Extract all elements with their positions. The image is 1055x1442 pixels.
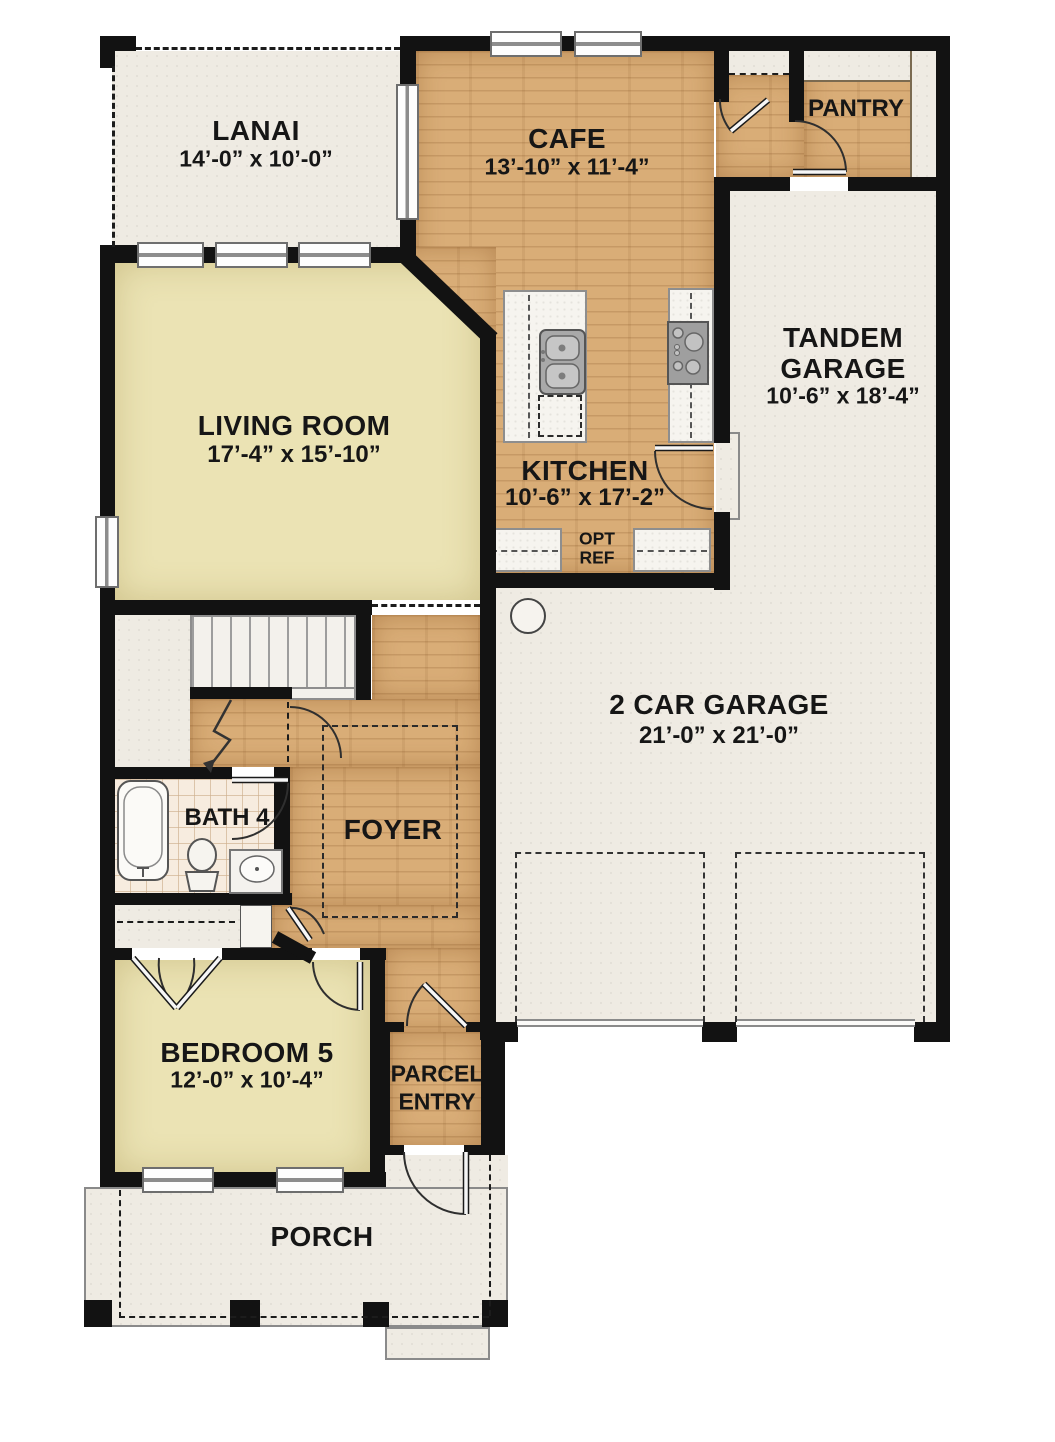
floor-plan: LANAI 14’-0” x 10’-0” CAFE 13’-10” x 11’… <box>0 0 1055 1442</box>
wall-kitchen-bottom <box>480 573 716 588</box>
counter-right-dash-line <box>690 293 692 438</box>
wall-bedroom-top-mid <box>222 948 312 960</box>
lanai-cafe-slider-window <box>396 84 419 220</box>
cafe-label: CAFE <box>528 125 606 153</box>
wall-tandem-left-upper <box>714 191 730 443</box>
wall-top-main <box>400 36 950 51</box>
kitchen-dims: 10’-6” x 17’-2” <box>505 486 665 510</box>
garage-door-post-left <box>496 1022 518 1042</box>
porch-label: PORCH <box>270 1223 373 1251</box>
wall-right-outer <box>936 36 950 1042</box>
kitchen-counter-bottom-left <box>487 528 562 572</box>
two-car-garage-label: 2 CAR GARAGE <box>609 691 829 719</box>
wall-pantry-bottom-right <box>848 177 936 191</box>
living-room-dims: 17’-4” x 15’-10” <box>207 443 380 467</box>
foyer-opening-dash <box>372 604 480 607</box>
lanai-window-2 <box>215 242 288 268</box>
foyer-floor-entry <box>385 948 481 1032</box>
wall-stairhall-top <box>100 600 372 615</box>
island-dash-line <box>528 295 530 438</box>
wall-bath-right <box>274 767 290 905</box>
garage-entry-step <box>716 432 740 520</box>
bedroom5-dims: 12’-0” x 10’-4” <box>170 1069 323 1092</box>
island-opt-box <box>538 395 582 437</box>
kitchen-label: KITCHEN <box>521 457 648 485</box>
porch-post-right <box>482 1300 508 1327</box>
stair-passage-dash <box>287 702 289 762</box>
porch-dash-right <box>489 1155 491 1316</box>
closet-rod-dash <box>117 921 235 923</box>
pantry-label: PANTRY <box>808 97 904 121</box>
wall-bath-bottom <box>100 893 292 905</box>
wall-parcel-top-right <box>466 1022 495 1032</box>
wall-bath-top <box>100 767 232 779</box>
lanai-dims: 14’-0” x 10’-0” <box>179 148 332 171</box>
closet-floor <box>114 905 240 948</box>
garage-bay-dashed-right <box>735 852 925 1022</box>
bedroom5-label: BEDROOM 5 <box>160 1039 333 1067</box>
bedroom-window-2 <box>276 1167 344 1193</box>
lanai-window-3 <box>298 242 371 268</box>
porch-post-mid <box>230 1300 260 1327</box>
wall-bedroom-top-left <box>100 948 132 960</box>
bedroom-window-1 <box>142 1167 214 1193</box>
counter-bl-dash-line <box>491 550 558 552</box>
two-car-garage-dims: 21’-0” x 21’-0” <box>639 724 799 748</box>
living-room-side-window <box>95 516 119 588</box>
wall-left-outer <box>100 263 115 1187</box>
tandem-garage-label-line1: TANDEM <box>783 324 903 352</box>
porch-dash-left <box>119 1190 121 1318</box>
stair-landing-floor <box>114 615 190 767</box>
counter-br-dash-line <box>637 550 707 552</box>
kitchen-counter-right <box>668 288 714 443</box>
living-room-label: LIVING ROOM <box>198 412 391 440</box>
staircase-treads <box>190 615 356 691</box>
porch-floor <box>84 1187 508 1327</box>
wall-parcel-bottom-right <box>464 1145 495 1155</box>
bath4-label: BATH 4 <box>185 806 270 830</box>
kitchen-counter-bottom-right <box>633 528 711 572</box>
tandem-garage-label-line2: GARAGE <box>780 355 905 383</box>
wall-stair-right <box>356 615 371 700</box>
wall-parcel-top-left <box>376 1022 404 1032</box>
opt-ref-label-line2: REF <box>580 549 615 567</box>
wall-parcel-left <box>376 1022 390 1155</box>
opt-ref-label-line1: OPT <box>579 530 615 548</box>
lanai-window-1 <box>137 242 204 268</box>
lanai-corner-post-v <box>100 36 115 68</box>
cafe-window-1 <box>490 31 562 57</box>
niche-dash <box>729 73 789 75</box>
lanai-label: LANAI <box>212 117 300 145</box>
lanai-dash-left <box>112 66 115 247</box>
garage-door-post-mid <box>702 1022 737 1042</box>
wall-closet-pillar <box>240 905 272 948</box>
parcel-entry-label-line1: PARCEL <box>391 1063 484 1086</box>
wall-pantry-bottom-left <box>714 177 790 191</box>
lanai-dash-top <box>136 47 400 50</box>
wall-parcel-bottom-left <box>376 1145 404 1155</box>
pantry-shelf-right <box>910 51 938 177</box>
kitchen-island <box>503 290 587 443</box>
tandem-garage-dims: 10’-6” x 18’-4” <box>766 385 919 408</box>
staircase-landing-tread <box>290 687 356 700</box>
cafe-window-2 <box>574 31 642 57</box>
garage-door-post-right <box>914 1022 950 1042</box>
cafe-dims: 13’-10” x 11’-4” <box>485 156 650 179</box>
wall-niche-left <box>714 36 729 102</box>
wall-stair-mid <box>190 687 292 699</box>
wall-pantry-left <box>789 36 804 122</box>
porch-post-left <box>84 1300 112 1327</box>
porch-post-third <box>363 1302 389 1327</box>
wall-living-kitchen <box>480 332 496 573</box>
garage-bay-dashed-left <box>515 852 705 1022</box>
porch-step <box>385 1327 490 1360</box>
foyer-label: FOYER <box>344 816 442 844</box>
foyer-floor-upper <box>372 615 480 699</box>
wall-garage-left <box>480 588 496 1040</box>
bath4-floor <box>114 779 274 893</box>
wall-tandem-left-lower <box>714 512 730 590</box>
parcel-entry-label-line2: ENTRY <box>398 1091 475 1114</box>
porch-dash-bottom <box>119 1316 489 1318</box>
